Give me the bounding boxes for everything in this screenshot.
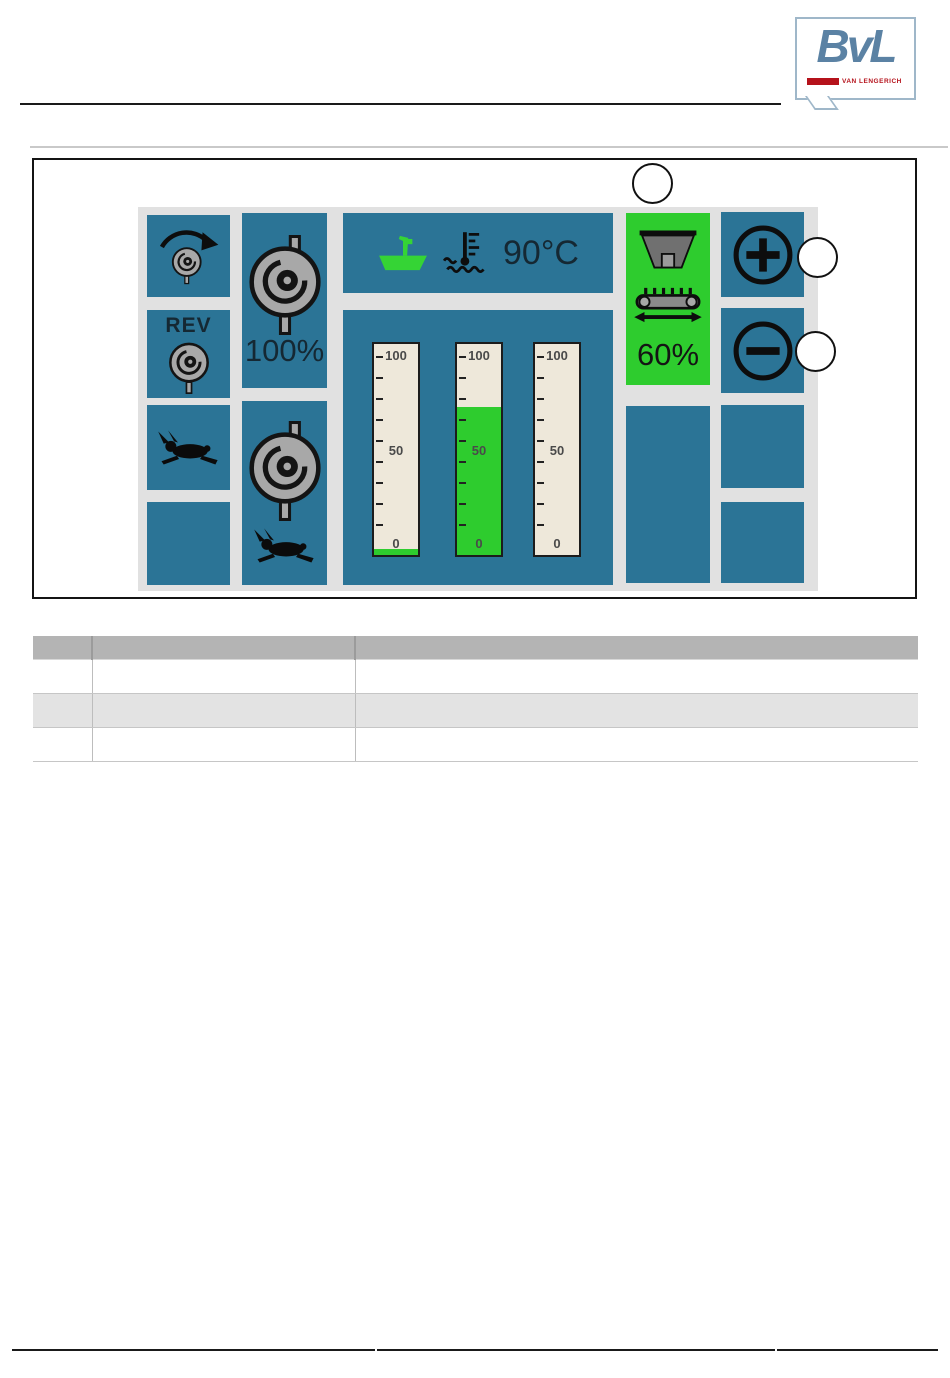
gauge-3-bottom-label: 0 (535, 536, 579, 551)
empty-tile (721, 502, 804, 583)
increase-button[interactable] (721, 212, 804, 297)
table-cell (33, 728, 92, 762)
gauge-cluster-tile: 100 50 0 100 50 0 100 50 0 (343, 310, 613, 585)
table-cell (92, 660, 355, 694)
conveyor-belt-arrow-icon (633, 286, 703, 324)
logo-tail-shape (805, 96, 839, 110)
footer-rule-segment (377, 1349, 775, 1351)
table-cell (92, 728, 355, 762)
temperature-status-tile: 90°C (343, 213, 613, 293)
bvl-logo: BvL VAN LENGERICH (795, 17, 916, 100)
section-divider-rule (30, 146, 948, 148)
empty-tile (147, 502, 230, 585)
table-cell (33, 660, 92, 694)
fast-speed-button[interactable] (147, 405, 230, 490)
gauge-1: 100 50 0 (372, 342, 420, 557)
hare-icon (156, 429, 222, 467)
table-cell (355, 694, 918, 728)
table-cell (92, 694, 355, 728)
table-header-cell (355, 636, 918, 660)
gauge-1-bottom-label: 0 (374, 536, 418, 551)
rotate-arrow-auger-icon (154, 221, 224, 291)
legend-table (33, 636, 918, 762)
gauge-3: 100 50 0 (533, 342, 581, 557)
mixer-speed-value: 100% (245, 335, 324, 366)
table-row (33, 728, 918, 762)
coolant-temperature-icon (443, 228, 489, 278)
mixer-auger-speed-button[interactable]: 100% (242, 213, 327, 388)
hare-icon (252, 527, 318, 565)
gauge-2: 100 50 0 (455, 342, 503, 557)
table-cell (33, 694, 92, 728)
callout-circle-3 (795, 331, 836, 372)
hmi-figure-frame: REV (32, 158, 917, 599)
gauge-2-mid-label: 50 (457, 443, 501, 458)
empty-tile (626, 406, 710, 583)
logo-subrow: VAN LENGERICH (807, 77, 908, 86)
gauge-2-top-label: 100 (457, 348, 501, 363)
table-header-cell (33, 636, 92, 660)
minus-circle-icon (731, 319, 795, 383)
table-row (33, 660, 918, 694)
gauge-1-top-label: 100 (374, 348, 418, 363)
empty-tile (721, 405, 804, 488)
hopper-icon (636, 228, 700, 270)
mixer-wagon-icon (377, 232, 429, 274)
header-rule (20, 103, 781, 105)
mixer-auger-icon (247, 421, 323, 521)
hmi-panel: REV (138, 207, 818, 591)
footer-rule-segment (777, 1349, 938, 1351)
gauge-1-mid-label: 50 (374, 443, 418, 458)
cross-conveyor-function-button[interactable]: 60% (626, 213, 710, 385)
logo-red-bar-icon (807, 78, 839, 85)
logo-wordmark: BvL (797, 21, 914, 72)
table-row (33, 694, 918, 728)
gauge-3-top-label: 100 (535, 348, 579, 363)
logo-subtext: VAN LENGERICH (842, 78, 902, 85)
footer-rule-segment (12, 1349, 375, 1351)
decrease-button[interactable] (721, 308, 804, 393)
reverse-label: REV (165, 315, 211, 336)
auger-reverse-button[interactable]: REV (147, 310, 230, 398)
table-header-row (33, 636, 918, 660)
auger-fast-button[interactable] (242, 401, 327, 585)
table-cell (355, 660, 918, 694)
conveyor-speed-value: 60% (637, 339, 699, 370)
callout-circle-1 (632, 163, 673, 204)
mixer-auger-icon (247, 235, 323, 335)
gauge-2-bottom-label: 0 (457, 536, 501, 551)
auger-rotation-direction-button[interactable] (147, 215, 230, 297)
mixer-auger-icon (166, 338, 212, 394)
table-header-cell (92, 636, 355, 660)
plus-circle-icon (731, 223, 795, 287)
table-cell (355, 728, 918, 762)
temperature-value: 90°C (503, 236, 579, 270)
callout-circle-2 (797, 237, 838, 278)
gauge-3-mid-label: 50 (535, 443, 579, 458)
